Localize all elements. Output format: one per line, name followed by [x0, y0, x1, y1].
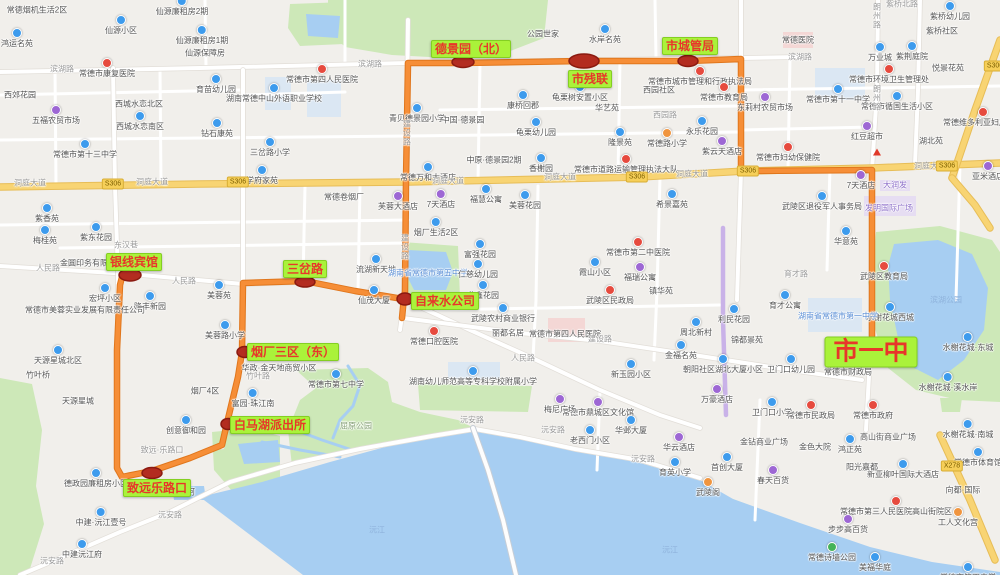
poi-label[interactable]: 卫门口小学 [752, 397, 792, 417]
poi-label[interactable]: 仙源廉租房2期 [156, 0, 208, 16]
poi-label[interactable]: 屈原公园 [340, 422, 372, 431]
bus-stop-label[interactable]: 银线宾馆 [106, 253, 162, 271]
poi-label[interactable]: 创意御和园 [166, 415, 206, 435]
poi-label[interactable]: 常德市第三人民医院高山街院区 [840, 496, 952, 516]
poi-place-icon [626, 359, 636, 369]
poi-place-icon [885, 302, 895, 312]
road-number-badge: X278 [941, 461, 963, 472]
poi-label[interactable]: 金钻商业广场 [740, 438, 788, 447]
poi-label[interactable]: 大润发 [883, 181, 907, 190]
poi-place-icon [248, 388, 258, 398]
poi-label[interactable]: 常德市环境卫生管理处 [849, 64, 929, 84]
bus-stop-marker[interactable] [569, 54, 599, 68]
poi-place-icon [265, 137, 275, 147]
road-name-label: 东汉巷 [114, 240, 138, 251]
poi-label[interactable]: 德政园廉租房小区 [64, 468, 128, 488]
poi-label[interactable]: 紫桥幼儿园 [930, 1, 970, 21]
poi-label[interactable]: 武陵区教育局 [860, 261, 908, 281]
poi-label[interactable]: 仙源保障房 [185, 49, 225, 58]
poi-label[interactable]: 常德口腔医院 [410, 326, 458, 346]
poi-place-icon [80, 139, 90, 149]
poi-label[interactable]: 仙源廉租房1期 [176, 25, 228, 45]
poi-landmark-icon [662, 128, 672, 138]
minor-road [60, 243, 408, 248]
poi-label[interactable]: 天源星城 [62, 397, 94, 406]
poi-label[interactable]: 常德市康复医院 [79, 58, 135, 78]
poi-label[interactable]: 常德烟机生活2区 [7, 6, 67, 15]
poi-place-icon [615, 127, 625, 137]
poi-label[interactable]: 竹叶桥 [26, 371, 50, 380]
road-number-badge: S306 [227, 177, 249, 188]
road-name-label: 洞庭大道 [676, 169, 708, 180]
bus-stop-label[interactable]: 致远乐路口 [123, 479, 191, 497]
poi-label[interactable]: 发明国际广场 [865, 204, 913, 213]
poi-label[interactable]: 华云酒店 [663, 432, 695, 452]
poi-place-icon [697, 116, 707, 126]
poi-label[interactable]: 常德市第四人民医院 [286, 64, 358, 84]
road-name-label: 洞庭大道 [136, 177, 168, 188]
poi-shop-icon [862, 121, 872, 131]
poi-place-icon [475, 239, 485, 249]
poi-label[interactable]: 鸿正苑 [838, 434, 862, 454]
poi-hospital-icon [102, 58, 112, 68]
poi-hospital-icon [868, 400, 878, 410]
bus-stop-label[interactable]: 市残联 [568, 70, 612, 88]
poi-label[interactable]: 华邺大厦 [615, 415, 647, 435]
poi-shop-icon [983, 161, 993, 171]
poi-place-icon [91, 468, 101, 478]
poi-label[interactable]: 香榭园 [529, 153, 553, 173]
poi-shop-icon [555, 394, 565, 404]
poi-shop-icon [712, 384, 722, 394]
poi-label[interactable]: 镇华苑 [649, 287, 673, 296]
poi-label[interactable]: 公园世家 [527, 30, 559, 39]
poi-place-icon [53, 345, 63, 355]
road-name-label: 滨湖路 [50, 64, 74, 75]
poi-place-icon [963, 419, 973, 429]
poi-label[interactable]: 常德医院 [782, 36, 814, 45]
poi-label[interactable]: 紫荆庭院 [896, 41, 928, 61]
poi-place-icon [116, 15, 126, 25]
minor-road [827, 168, 830, 270]
poi-park-icon [827, 542, 837, 552]
poi-label[interactable]: 常德市美蓉实业发展有限责任公司 [25, 306, 145, 315]
poi-place-icon [520, 190, 530, 200]
poi-label[interactable]: 紫东花园 [80, 222, 112, 242]
poi-label[interactable]: 新玉园小区 [611, 359, 651, 379]
poi-label[interactable]: 常德市第十一中学 [806, 84, 870, 104]
road-name-label: 竹叶路 [246, 371, 270, 382]
road-name-label: 沅安路 [541, 425, 565, 436]
poi-place-icon [973, 447, 983, 457]
poi-shop-icon [760, 92, 770, 102]
bus-stop-label[interactable]: 自来水公司 [411, 292, 479, 310]
poi-landmark-icon [703, 477, 713, 487]
poi-label[interactable]: 东莉村农贸市场 [737, 92, 793, 112]
poi-label[interactable]: 西城水恋南区 [116, 111, 164, 131]
road-name-label: 沅安路 [40, 556, 64, 567]
poi-place-icon [478, 280, 488, 290]
poi-label[interactable]: 华艺苑 [595, 104, 619, 113]
poi-label[interactable]: 福慧公寓 [470, 184, 502, 204]
poi-hospital-icon [891, 496, 901, 506]
poi-shop-icon [51, 105, 61, 115]
poi-label[interactable]: 周北新村 [680, 317, 712, 337]
minor-road [358, 186, 360, 292]
alert-triangle-icon [873, 149, 881, 156]
poi-place-icon [729, 304, 739, 314]
road-name-label: 沅安路 [631, 454, 655, 465]
poi-label[interactable]: 7天酒店 [847, 170, 875, 190]
poi-place-icon [945, 1, 955, 11]
poi-place-icon [212, 118, 222, 128]
poi-label[interactable]: 仙茂大厦 [358, 285, 390, 305]
poi-label[interactable]: 卫门口幼儿园 [767, 354, 815, 374]
poi-place-icon [135, 111, 145, 121]
road-name-label: 人民路 [511, 353, 535, 364]
poi-label[interactable]: 西园社区 [643, 86, 675, 95]
poi-label[interactable]: 7天酒店 [427, 189, 455, 209]
poi-place-icon [331, 369, 341, 379]
poi-shop-icon [768, 465, 778, 475]
poi-label[interactable]: 向都·国际 [946, 486, 981, 495]
water-name-label: 沅江 [662, 546, 678, 555]
poi-place-icon [722, 452, 732, 462]
road-name-label: 西园路 [653, 110, 677, 121]
poi-place-icon [667, 189, 677, 199]
road-name-label: 致远·乐路口 [141, 445, 184, 456]
poi-place-icon [963, 562, 973, 572]
road-name-label: 育才路 [784, 269, 808, 280]
poi-place-icon [371, 254, 381, 264]
poi-place-icon [257, 165, 267, 175]
poi-place-icon [898, 459, 908, 469]
poi-hospital-icon [429, 326, 439, 336]
bus-stop-marker[interactable] [678, 56, 698, 67]
bus-stop-label[interactable]: 市城管局 [662, 37, 718, 55]
road-name-label: 洞庭大道 [544, 172, 576, 183]
poi-place-icon [214, 280, 224, 290]
poi-label[interactable]: 仙源小区 [105, 15, 137, 35]
poi-label[interactable]: 武陵阁 [696, 477, 720, 497]
poi-label[interactable]: 首创大厦 [711, 452, 743, 472]
poi-label[interactable]: 宏坪小区 [89, 283, 121, 303]
poi-place-icon [718, 354, 728, 364]
pond [306, 14, 340, 38]
poi-label[interactable]: 万豪酒店 [701, 384, 733, 404]
road-name-label: 朗州路 [872, 3, 883, 30]
poi-label[interactable]: 隆景苑 [608, 127, 632, 147]
poi-hospital-icon [879, 261, 889, 271]
poi-hospital-icon [695, 66, 705, 76]
poi-shop-icon [717, 136, 727, 146]
poi-place-icon [817, 191, 827, 201]
poi-label[interactable]: 步步高百货 [828, 514, 868, 534]
poi-label[interactable]: 梅桂苑 [33, 225, 57, 245]
bus-stop-label[interactable]: 烟厂三区（东） [247, 343, 339, 361]
road-number-badge: S306 [984, 61, 1000, 72]
bus-stop-marker[interactable] [142, 468, 162, 479]
poi-place-icon [676, 340, 686, 350]
poi-place-icon [626, 415, 636, 425]
poi-label[interactable]: 金福名苑 [665, 340, 697, 360]
poi-shop-icon [674, 432, 684, 442]
minor-road [55, 68, 56, 186]
poi-label[interactable]: 武陵区退役军人事务局 [782, 191, 862, 211]
poi-label[interactable]: 五福农贸市场 [32, 105, 80, 125]
minor-road [655, 0, 656, 58]
poi-label[interactable]: 常德路小学 [647, 128, 687, 148]
poi-place-icon [691, 317, 701, 327]
poi-label[interactable]: 中原·德景园2期 [466, 156, 521, 165]
poi-place-icon [181, 415, 191, 425]
poi-place-icon [590, 257, 600, 267]
poi-place-icon [40, 225, 50, 235]
poi-label[interactable]: 美蓉花园 [509, 190, 541, 210]
poi-place-icon [423, 162, 433, 172]
poi-label[interactable]: 湖南省常德市第五中学 [388, 269, 468, 278]
road-name-label: 紫桥北路 [886, 0, 918, 10]
poi-label[interactable]: 中国·德景园 [442, 116, 485, 125]
poi-place-icon [963, 332, 973, 342]
poi-label[interactable]: 常德维多利亚妇产医院 [943, 107, 1000, 127]
poi-label[interactable]: 烟厂生活2区 [414, 217, 458, 237]
road-name-label: 人民路 [36, 263, 60, 274]
road-name-label: 建设路 [588, 334, 612, 345]
poi-label[interactable]: 美蓉路小学 [205, 320, 245, 340]
poi-place-icon [369, 285, 379, 295]
poi-place-icon [780, 290, 790, 300]
poi-label[interactable]: 希景嘉苑 [656, 189, 688, 209]
road-name-label: 人民路 [172, 276, 196, 287]
poi-landmark-icon [953, 507, 963, 517]
park-area [0, 378, 44, 575]
poi-place-icon [412, 103, 422, 113]
poi-place-icon [431, 217, 441, 227]
poi-label[interactable]: 常德市第二中医院 [606, 237, 670, 257]
poi-label[interactable]: 福瑞公寓 [624, 262, 656, 282]
poi-label[interactable]: 天源星城北区 [34, 345, 82, 365]
road-name-label: 沅安路 [158, 510, 182, 521]
poi-label[interactable]: 紫香苑 [35, 203, 59, 223]
poi-label[interactable]: 常德诗墙公园 [808, 542, 856, 562]
poi-label[interactable]: 水岸名苑 [589, 24, 621, 44]
poi-label[interactable]: 永乐花园 [686, 116, 718, 136]
poi-place-icon [841, 226, 851, 236]
poi-label[interactable]: 青贝德景园小学 [389, 103, 445, 123]
poi-hospital-icon [719, 82, 729, 92]
bus-stop-label[interactable]: 市一中 [824, 337, 917, 368]
road-name-label: 滨湖路 [788, 52, 812, 63]
poi-label[interactable]: 紫云天酒店 [702, 136, 742, 156]
poi-label[interactable]: 龟栗幼儿园 [516, 117, 556, 137]
poi-label[interactable]: 常德市第十三中学 [53, 139, 117, 159]
poi-place-icon [870, 552, 880, 562]
road-name-label: 滨湖路 [358, 59, 382, 70]
poi-shop-icon [593, 397, 603, 407]
poi-place-icon [91, 222, 101, 232]
water-name-label: 滨湖公园 [930, 296, 962, 305]
poi-hospital-icon [978, 107, 988, 117]
poi-hospital-icon [621, 154, 631, 164]
poi-place-icon [518, 90, 528, 100]
bus-stop-label[interactable]: 三岔路 [283, 260, 327, 278]
road-name-label: 沅安路 [460, 415, 484, 426]
minor-road [440, 106, 740, 110]
road-name-label: 洞庭大道 [432, 176, 464, 187]
poi-place-icon [145, 291, 155, 301]
poi-label[interactable]: 霞山小区 [579, 257, 611, 277]
poi-label[interactable]: 钻石康苑 [201, 118, 233, 138]
poi-place-icon [531, 117, 541, 127]
poi-label[interactable]: 中建·沅江壹号 [76, 507, 127, 527]
poi-label[interactable]: 鸿运名苑 [1, 28, 33, 48]
poi-label[interactable]: 红豆超市 [851, 121, 883, 141]
poi-shop-icon [635, 262, 645, 272]
poi-label[interactable]: 三岔路小学 [250, 137, 290, 157]
poi-label[interactable]: 万业城 [868, 42, 892, 62]
poi-label[interactable]: 丽都名居 [492, 329, 524, 338]
poi-label[interactable]: 育才公寓 [769, 290, 801, 310]
minor-road [755, 400, 760, 520]
poi-shop-icon [856, 170, 866, 180]
poi-label[interactable]: 梅尼广场 [544, 394, 576, 414]
poi-label[interactable]: 武陵农村商业银行 [471, 303, 535, 323]
poi-place-icon [220, 320, 230, 330]
poi-place-icon [197, 25, 207, 35]
poi-label[interactable]: 金色大院 [799, 443, 831, 452]
road-name-label: 朗州路 [872, 85, 883, 112]
park-area [940, 398, 962, 412]
poi-label[interactable]: 湖南幼儿师范高等专科学校附属小学 [409, 366, 537, 386]
poi-place-icon [536, 153, 546, 163]
poi-label[interactable]: 水榭花城·溪水岸 [919, 372, 978, 392]
poi-shop-icon [393, 191, 403, 201]
road-number-badge: S306 [737, 166, 759, 177]
poi-place-icon [211, 74, 221, 84]
poi-label[interactable]: 紫桥社区 [926, 27, 958, 36]
poi-label[interactable]: 西城水恋北区 [115, 100, 163, 109]
poi-place-icon [100, 283, 110, 293]
bus-stop-marker[interactable] [295, 277, 315, 287]
poi-hospital-icon [806, 400, 816, 410]
poi-label[interactable]: 育英小学 [659, 457, 691, 477]
poi-label[interactable]: 水榭花城·东城 [943, 332, 994, 352]
poi-label[interactable]: 武陵区民政局 [586, 285, 634, 305]
poi-place-icon [77, 539, 87, 549]
poi-label[interactable]: 芙蓉大酒店 [378, 191, 418, 211]
poi-label[interactable]: 常德市政府 [853, 400, 893, 420]
poi-place-icon [468, 366, 478, 376]
poi-place-icon [907, 41, 917, 51]
poi-place-icon [481, 184, 491, 194]
poi-label[interactable]: 中建沅江府 [62, 539, 102, 559]
poi-label[interactable]: 常德卷烟厂 [324, 193, 364, 202]
poi-place-icon [845, 434, 855, 444]
road-number-badge: S306 [102, 179, 124, 190]
poi-label[interactable]: 富园·珠江南 [232, 388, 275, 408]
poi-place-icon [833, 84, 843, 94]
poi-hospital-icon [605, 285, 615, 295]
poi-label[interactable]: 烟厂4区 [191, 387, 219, 396]
poi-label[interactable]: 悦景花苑 [932, 64, 964, 73]
road-name-label: 建设路 [400, 234, 411, 261]
poi-shop-icon [843, 514, 853, 524]
bus-stop-label[interactable]: 白马湖派出所 [230, 416, 310, 434]
poi-place-icon [670, 457, 680, 467]
poi-label[interactable]: 春天百货 [757, 465, 789, 485]
poi-place-icon [96, 507, 106, 517]
poi-place-icon [473, 259, 483, 269]
poi-place-icon [269, 83, 279, 93]
poi-place-icon [42, 203, 52, 213]
poi-label[interactable]: 湖北苑 [919, 137, 943, 146]
poi-label[interactable]: 常德市妇幼保健院 [756, 142, 820, 162]
road-number-badge: S306 [936, 161, 958, 172]
poi-label[interactable]: 湖南省常德市第一中学 [798, 312, 878, 321]
poi-label[interactable]: 亚米酒店 [972, 161, 1000, 181]
bus-stop-label[interactable]: 德景园（北） [431, 40, 511, 58]
poi-place-icon [12, 28, 22, 38]
map-canvas[interactable]: 常德烟机生活2区鸿运名苑仙源小区仙源廉租房2期仙源廉租房1期仙源保障房常德市康复… [0, 0, 1000, 575]
minor-road [741, 86, 1000, 90]
poi-label[interactable]: 西郊花园 [4, 91, 36, 100]
bus-stop-marker[interactable] [452, 57, 474, 68]
poi-label[interactable]: 湖南常德中山外语职业学校 [226, 83, 322, 103]
poi-shop-icon [436, 189, 446, 199]
poi-label[interactable]: 美福华庭 [859, 552, 891, 572]
poi-hospital-icon [884, 64, 894, 74]
poi-label[interactable]: 富强花园 [464, 239, 496, 259]
poi-label[interactable]: 康桥回郡 [507, 90, 539, 110]
poi-label[interactable]: 常德市第四中学 [940, 562, 996, 575]
poi-place-icon [177, 0, 187, 6]
poi-place-icon [875, 42, 885, 52]
minor-road [0, 220, 408, 225]
poi-label[interactable]: 利民花园 [718, 304, 750, 324]
poi-label[interactable]: 水榭花城·南城 [943, 419, 994, 439]
poi-label[interactable]: 仁慈幼儿园 [458, 259, 498, 279]
poi-label[interactable]: 阳光嘉都 [846, 463, 878, 472]
road-name-label: 洞庭大道 [14, 178, 46, 189]
poi-place-icon [943, 372, 953, 382]
poi-label[interactable]: 高山街商业广场 [860, 433, 916, 442]
poi-hospital-icon [317, 64, 327, 74]
poi-label[interactable]: 华意苑 [834, 226, 858, 246]
poi-hospital-icon [783, 142, 793, 152]
poi-label[interactable]: 美蓉苑 [207, 280, 231, 300]
poi-label[interactable]: 常德市民政局 [787, 400, 835, 420]
water-name-label: 沅江 [369, 526, 385, 535]
poi-place-icon [767, 397, 777, 407]
poi-place-icon [786, 354, 796, 364]
poi-place-icon [498, 303, 508, 313]
park-area [418, 384, 532, 412]
road-name-label: 建设路 [402, 120, 413, 147]
poi-label[interactable]: 锦都景苑 [731, 336, 763, 345]
poi-hospital-icon [633, 237, 643, 247]
poi-label[interactable]: 学府家苑 [246, 165, 278, 185]
poi-place-icon [892, 91, 902, 101]
poi-label[interactable]: 老西门小区 [570, 425, 610, 445]
poi-place-icon [585, 425, 595, 435]
poi-label[interactable]: 常德市财政局 [824, 368, 872, 377]
road-number-badge: S306 [626, 172, 648, 183]
poi-place-icon [600, 24, 610, 34]
